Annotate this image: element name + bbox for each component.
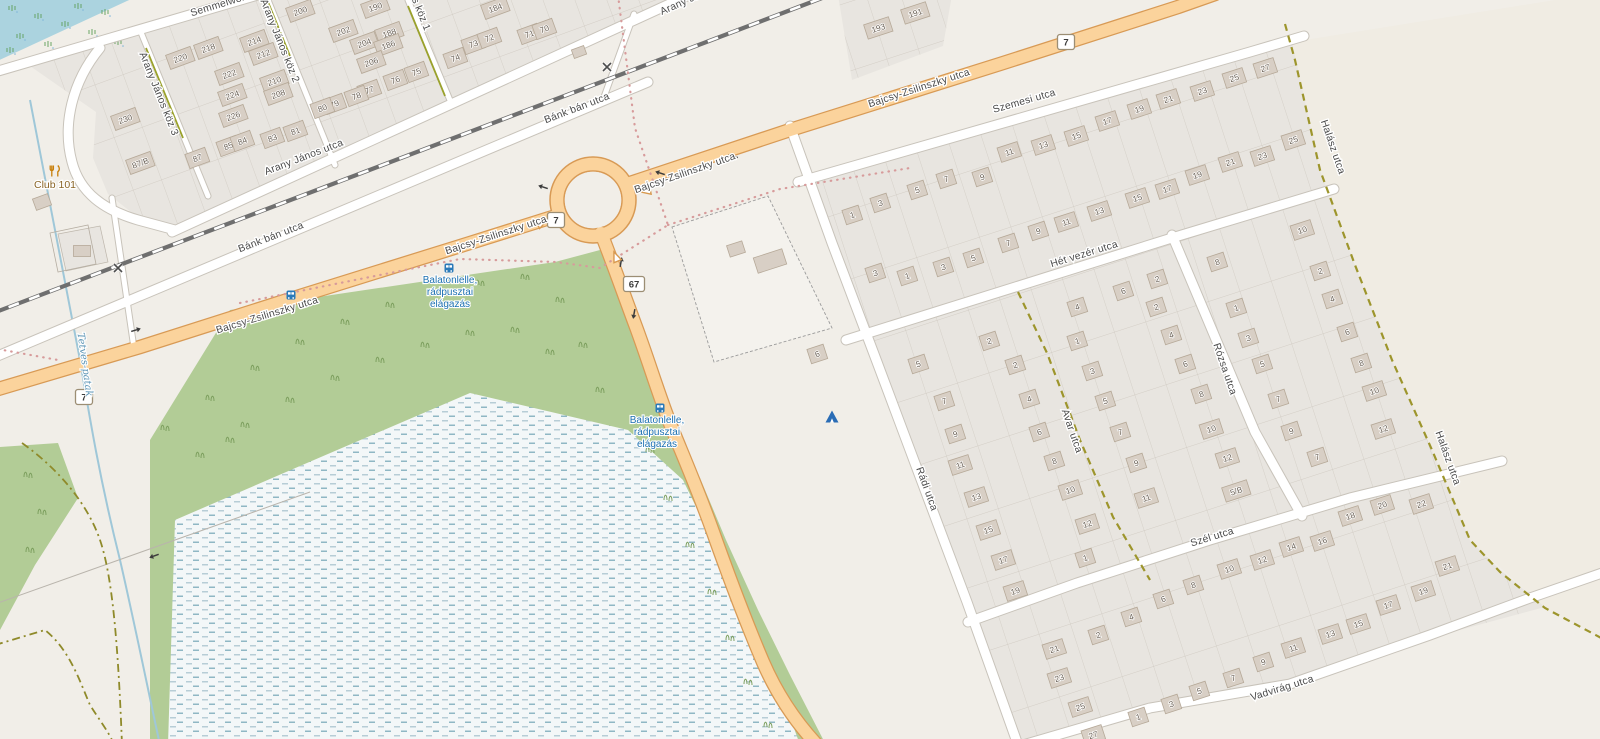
map-tiles: 23087/B878584838122622422222021821421221…	[0, 0, 1600, 739]
transit-stop-label: Balatonlelle,	[423, 275, 477, 286]
poi-label: Club 101	[34, 179, 76, 191]
route-shield: 7	[1058, 35, 1075, 50]
route-shield: 7	[548, 213, 565, 228]
route-shield: 67	[624, 277, 645, 292]
transit-stop-label: Balatonlelle,	[630, 415, 684, 426]
transit-stop-label: rádpusztai	[427, 287, 473, 298]
bus-stop-icon	[445, 264, 454, 273]
transit-stop-label: rádpusztai	[634, 427, 680, 438]
bus-stop-icon	[287, 291, 296, 300]
transit-stop-label: elágazás	[430, 299, 470, 310]
route-number: 7	[553, 216, 558, 227]
building	[74, 246, 91, 257]
transit-stop-label: elágazás	[637, 439, 677, 450]
route-number: 7	[1063, 38, 1068, 49]
route-number: 67	[629, 280, 640, 291]
map-canvas[interactable]: 23087/B878584838122622422222021821421221…	[0, 0, 1600, 739]
bus-stop-icon	[656, 404, 665, 413]
